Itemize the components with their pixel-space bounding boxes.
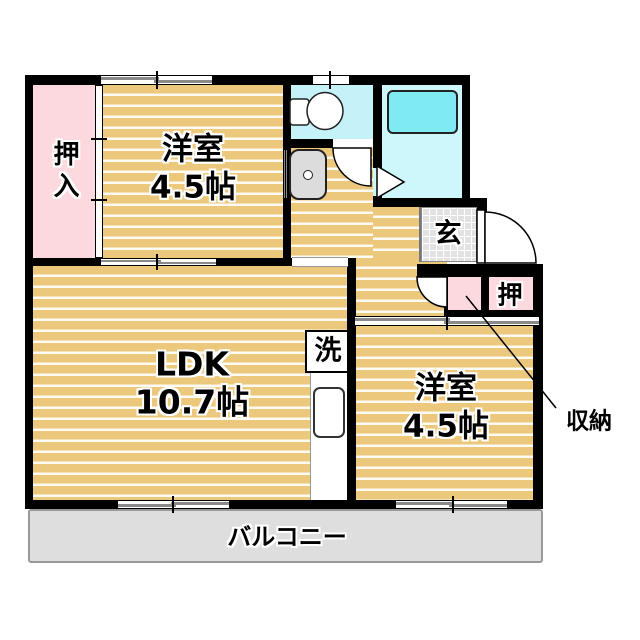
window-pane (171, 502, 229, 505)
wall-storage-left (444, 277, 448, 312)
mirror-line (284, 150, 287, 198)
wall-ldk-divider (347, 258, 356, 500)
wall-bottom-b (230, 500, 395, 509)
hallway-east (373, 207, 421, 262)
window-pane (449, 504, 507, 507)
wall-frontdoor-stub (477, 198, 487, 214)
genkan-step-edge (419, 207, 421, 262)
fusuma-tick (156, 254, 158, 270)
wall-mid-b (217, 258, 292, 266)
wall-top-c (350, 75, 470, 85)
wall-bath-left-a (373, 85, 382, 168)
fusuma-closet-top-left (95, 85, 103, 258)
wall-closet-tl-bottom (25, 258, 103, 266)
window-pane (118, 504, 176, 507)
wall-bottom-a (25, 500, 117, 509)
bath-doorway (373, 168, 382, 196)
room-toilet-floor (291, 85, 373, 139)
front-door-leaf (477, 210, 485, 263)
door-tick (446, 312, 448, 330)
front-door-swing (485, 212, 536, 263)
wall-closet-divider (481, 277, 489, 312)
wall-toilet-bottom (283, 139, 333, 148)
fusuma-tick (91, 199, 107, 201)
window-toilet (312, 75, 350, 85)
window-tick (329, 71, 331, 89)
label-bedroom-top-size: 4.5帖 (150, 173, 236, 204)
label-bedroom-right-size: 4.5帖 (403, 412, 489, 443)
wall-left (25, 75, 33, 509)
fusuma-bedroom-ldk (100, 258, 217, 266)
wall-right-lower (533, 264, 543, 509)
label-bedroom-right-name: 洋室 (415, 374, 477, 405)
window-tick (172, 496, 174, 513)
label-bedroom-top-name: 洋室 (162, 135, 224, 166)
window-pane (154, 80, 212, 83)
door-panel (355, 318, 450, 321)
wall-right-upper (462, 75, 470, 207)
room-storage-closet (448, 277, 481, 312)
opening-hall-ldk (292, 257, 348, 267)
bathtub (387, 90, 458, 134)
label-ldk-name: LDK (155, 348, 229, 381)
window-tick (452, 496, 454, 513)
door-panel (444, 321, 539, 324)
label-entrance: 玄 (435, 221, 462, 248)
door-panel (101, 260, 161, 262)
floorplan-canvas: 押入 洋室 4.5帖 LDK 10.7帖 洋室 4.5帖 玄 押 洗 収納 バル… (0, 0, 640, 640)
label-laundry: 洗 (315, 338, 342, 365)
fusuma-tick (91, 138, 107, 140)
label-storage: 収納 (566, 411, 612, 434)
window-pane (101, 77, 159, 80)
label-balcony: バルコニー (227, 525, 347, 549)
label-closet-top-left: 押入 (51, 140, 77, 204)
window-pane (396, 502, 454, 505)
window-tick (156, 71, 158, 89)
wall-bath-hall (373, 198, 487, 207)
wall-genkan-bottom (417, 264, 541, 277)
label-closet-right: 押 (497, 283, 522, 308)
door-panel (156, 262, 216, 264)
wall-top-a (25, 75, 100, 85)
wall-bath-left-b (373, 196, 382, 207)
label-ldk-size: 10.7帖 (135, 386, 249, 419)
washing-machine-outline (313, 387, 345, 438)
wall-top-b (213, 75, 312, 85)
washbasin-drain (303, 170, 313, 180)
